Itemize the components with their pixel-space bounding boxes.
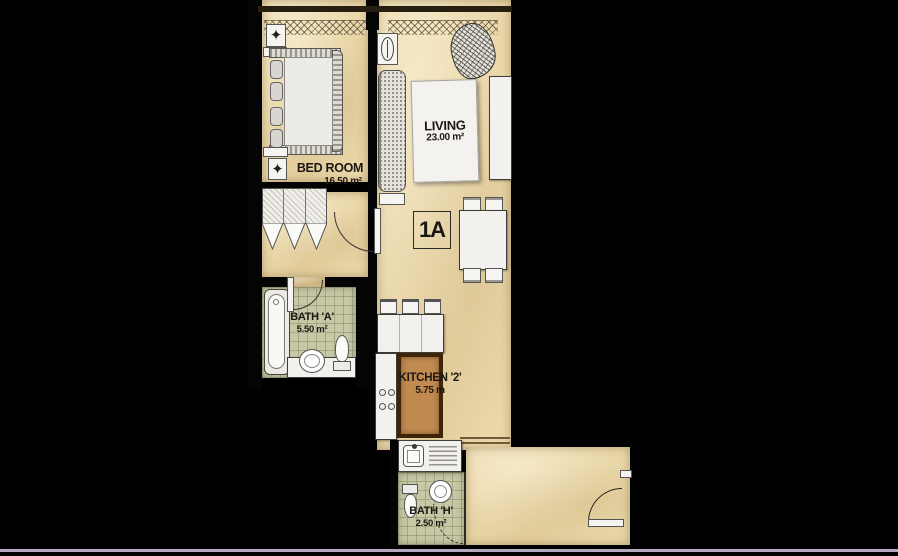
bed-pillow bbox=[270, 82, 283, 101]
bedroom-door-leaf bbox=[374, 208, 381, 254]
faucet-dot bbox=[412, 444, 417, 449]
basin-inner bbox=[407, 450, 420, 463]
bath-h-corridor-divider bbox=[464, 472, 466, 545]
window-wall-line bbox=[258, 6, 512, 12]
bath-a-top-wall-right bbox=[325, 277, 357, 287]
dining-chair-icon bbox=[463, 268, 481, 283]
unit-label-box: 1A bbox=[413, 211, 451, 249]
stove-burner-icon bbox=[379, 389, 386, 396]
ceiling-fan-icon bbox=[377, 33, 398, 65]
ac-louvre-glyph: ✦ bbox=[271, 162, 284, 177]
fan-axis bbox=[387, 40, 388, 58]
kitchen-label-block: KITCHEN '2' 5.75 m bbox=[392, 372, 468, 397]
bath-a-top-wall-left bbox=[250, 277, 287, 287]
kitchen-label: KITCHEN '2' bbox=[392, 372, 468, 384]
stove-burner-icon bbox=[388, 403, 395, 410]
sofa-icon bbox=[378, 70, 406, 192]
drainboard-icon bbox=[429, 446, 457, 467]
unit-label: 1A bbox=[419, 217, 445, 243]
living-area: 23.00 m² bbox=[426, 132, 464, 143]
washbasin-inner bbox=[304, 354, 320, 368]
living-rug: LIVING 23.00 m² bbox=[411, 79, 480, 183]
bedroom-label: BED ROOM bbox=[288, 162, 372, 175]
wardrobe-hangers bbox=[262, 223, 327, 250]
bathtub-drain bbox=[273, 299, 279, 305]
bath-a-area: 5.50 m² bbox=[273, 325, 351, 335]
left-wall bbox=[248, 0, 262, 390]
entry-door-leaf bbox=[588, 519, 624, 527]
toilet-tank bbox=[402, 484, 418, 494]
bar-stool-icon bbox=[424, 299, 441, 314]
bath-h-label-block: BATH 'H' 2.50 m² bbox=[399, 506, 463, 529]
nightstand-icon bbox=[263, 147, 288, 157]
bar-stool-icon bbox=[402, 299, 419, 314]
toilet-bowl bbox=[335, 335, 349, 362]
toilet-icon bbox=[333, 335, 352, 372]
hall-threshold-line-2 bbox=[460, 442, 510, 444]
kitchen-area: 5.75 m bbox=[392, 386, 468, 397]
round-basin-inner bbox=[434, 485, 447, 498]
bath-a-label-block: BATH 'A' 5.50 m² bbox=[273, 312, 351, 335]
bath-h-area: 2.50 m² bbox=[399, 519, 463, 529]
bath-a-right-wall bbox=[356, 277, 370, 388]
dining-table-icon bbox=[459, 210, 507, 270]
bed-trim-right bbox=[332, 50, 343, 152]
ac-louvre-icon: ✦ bbox=[268, 158, 287, 180]
bedroom-area: 16.50 m² bbox=[288, 177, 372, 188]
wardrobe-rail bbox=[262, 188, 327, 224]
tv-console-icon bbox=[489, 76, 512, 180]
ac-louvre-glyph: ✦ bbox=[270, 28, 283, 43]
sofa-side-table bbox=[379, 193, 405, 205]
washbasin-icon bbox=[299, 349, 325, 373]
bed-pillow bbox=[270, 129, 283, 148]
bath-h-label: BATH 'H' bbox=[399, 506, 463, 518]
bottom-accent-line bbox=[0, 549, 898, 552]
kitchen-counter-icon bbox=[377, 314, 444, 353]
top-center-pillar bbox=[366, 0, 379, 30]
hall-threshold-line-1 bbox=[460, 437, 510, 439]
stove-burner-icon bbox=[379, 403, 386, 410]
bar-stool-icon bbox=[380, 299, 397, 314]
wardrobe-divider bbox=[305, 188, 306, 224]
bath-a-label: BATH 'A' bbox=[273, 312, 351, 324]
wardrobe-icon bbox=[262, 188, 327, 250]
bedroom-label-block: BED ROOM 16.50 m² bbox=[288, 162, 372, 188]
toilet-tank bbox=[333, 361, 351, 371]
bed-pillow bbox=[270, 60, 283, 79]
entry-door-jamb bbox=[620, 470, 632, 478]
bath-h-left-wall bbox=[390, 440, 398, 546]
round-basin-icon bbox=[429, 480, 452, 503]
bed-pillow bbox=[270, 107, 283, 126]
kitchen-sink-basin-icon bbox=[403, 445, 424, 467]
floor-plan-canvas: ✦ ✦ LIVING 23.00 m² bbox=[0, 0, 898, 556]
wardrobe-divider bbox=[283, 188, 284, 224]
bed-mattress bbox=[284, 57, 333, 146]
dining-chair-icon bbox=[485, 268, 503, 283]
ac-louvre-icon: ✦ bbox=[266, 24, 286, 47]
bed-icon bbox=[265, 46, 345, 158]
